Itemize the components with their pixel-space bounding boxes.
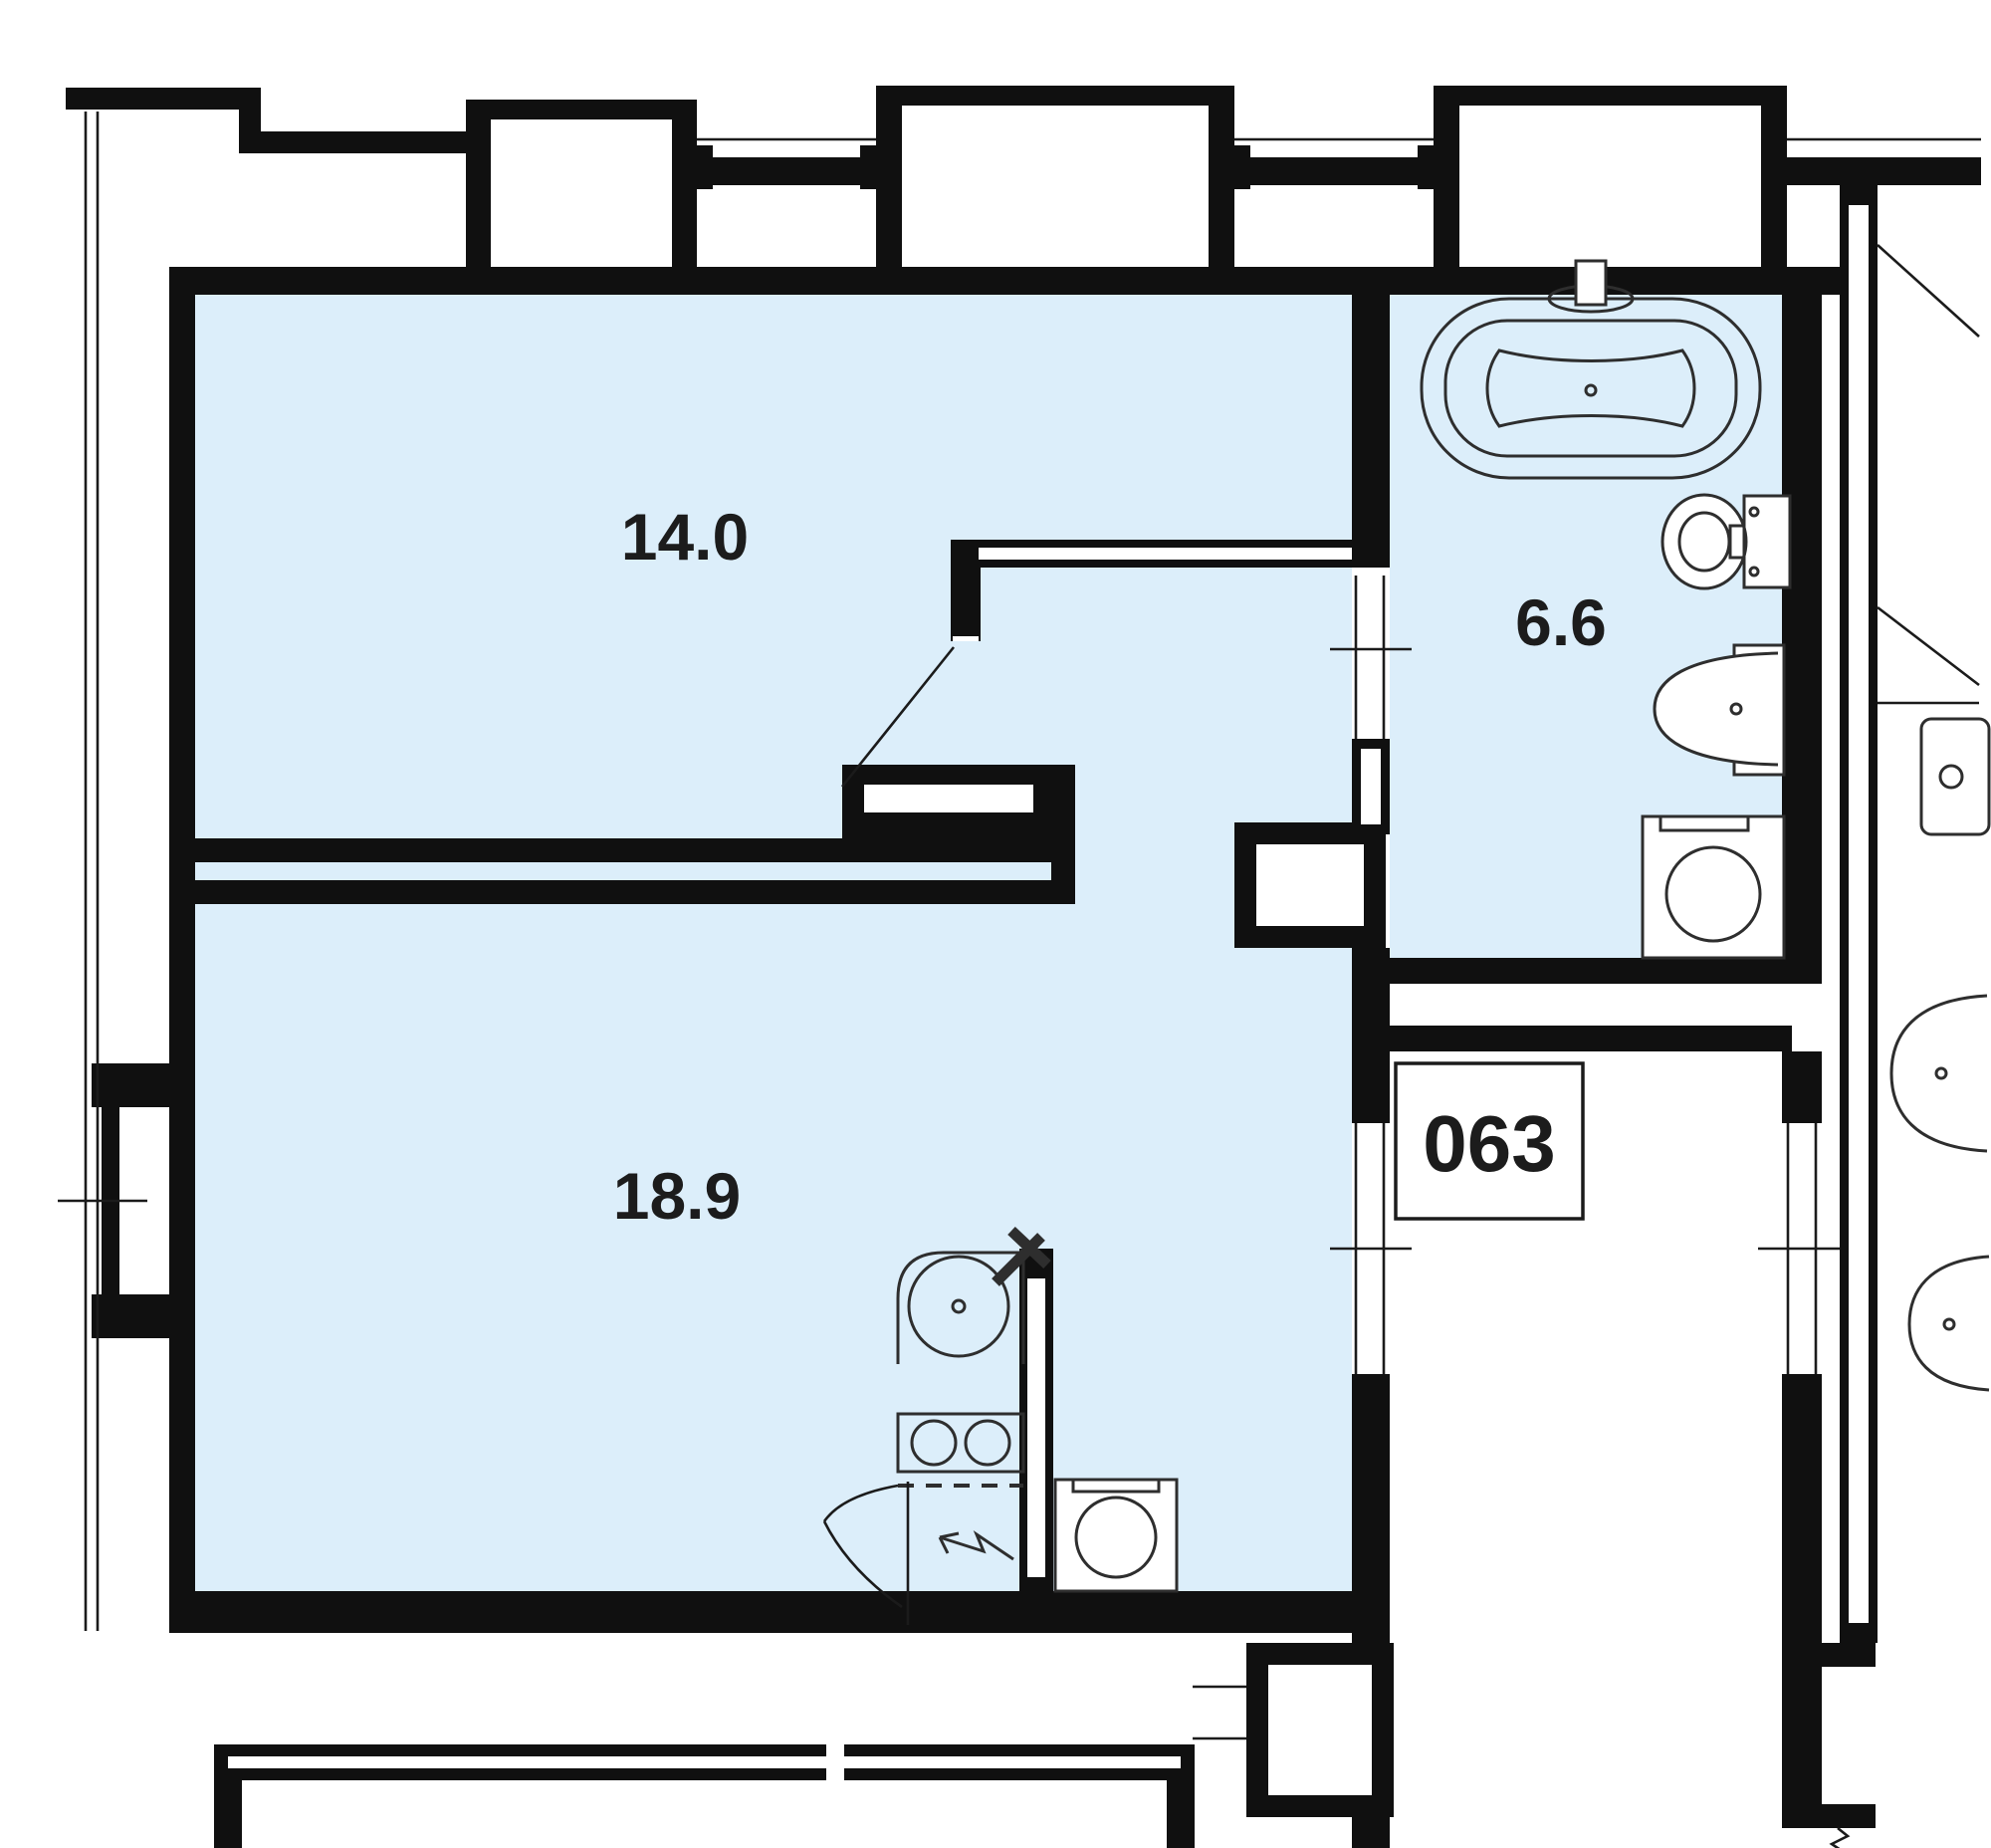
toilet-icon bbox=[1662, 495, 1790, 588]
neighbor-door-swing-icon-2 bbox=[1878, 607, 1979, 685]
neighbor-toilet-icon bbox=[1921, 719, 1989, 834]
bay1-top-wall bbox=[466, 100, 697, 119]
window1-jamb-r bbox=[860, 145, 876, 189]
bay1-left-wall bbox=[466, 100, 491, 295]
floor-plan-drawing: 14.0 18.9 6.6 063 bbox=[0, 0, 1991, 1848]
unit-number-badge: 063 bbox=[1396, 1063, 1583, 1219]
window3-bar bbox=[1787, 157, 1981, 185]
bay3-left-wall bbox=[1434, 86, 1459, 295]
neighbor-basin-icon bbox=[1891, 996, 1987, 1151]
bathroom-label: 6.6 bbox=[1515, 585, 1607, 659]
wall-step-3 bbox=[239, 131, 468, 153]
window1-bar bbox=[697, 157, 876, 185]
bay2-left-wall bbox=[876, 86, 902, 295]
corridor-right-wall-2 bbox=[1782, 1374, 1822, 1828]
bathroom-right-wall bbox=[1782, 295, 1822, 984]
door-stub bbox=[951, 568, 981, 641]
bay1-right-wall bbox=[672, 100, 697, 295]
bottom-wall bbox=[169, 1591, 1390, 1633]
room-18-9-label: 18.9 bbox=[613, 1159, 741, 1233]
corridor-top-bar-1 bbox=[1390, 958, 1792, 984]
window2-jamb-r bbox=[1418, 145, 1434, 189]
window2-jamb-l bbox=[1234, 145, 1250, 189]
room-areas bbox=[195, 295, 1782, 1591]
corridor-right-door-opening bbox=[1758, 1123, 1840, 1374]
break-line bbox=[1832, 1828, 1848, 1848]
corridor-top-bar-2 bbox=[1390, 1026, 1792, 1051]
neighbor-door-swing-icon bbox=[1878, 245, 1979, 337]
bay2-top-wall bbox=[876, 86, 1234, 106]
appliance-icon bbox=[1055, 1480, 1177, 1591]
left-wall bbox=[169, 267, 195, 1633]
bay2-right-wall bbox=[1209, 86, 1234, 295]
divider-bar-1 bbox=[169, 838, 1075, 862]
window1-jamb-l bbox=[697, 145, 713, 189]
floor-plan-page: 14.0 18.9 6.6 063 bbox=[0, 0, 1991, 1848]
neighbor-unit-fixtures bbox=[1878, 245, 1989, 1390]
corridor-right-step-2 bbox=[1822, 1804, 1876, 1828]
bathroom-left-wall bbox=[1352, 267, 1390, 568]
corridor-right-wall-1 bbox=[1782, 1051, 1822, 1123]
bay3-top-wall bbox=[1434, 86, 1787, 106]
divider-endcap bbox=[1051, 838, 1075, 904]
divider-bar-2 bbox=[169, 880, 1075, 904]
corridor-right-step-1 bbox=[1822, 1643, 1876, 1667]
bay3-right-wall bbox=[1761, 86, 1787, 295]
left-window-jamb-bottom bbox=[92, 1294, 171, 1338]
unit-number-label: 063 bbox=[1423, 1099, 1555, 1188]
room-14-label: 14.0 bbox=[621, 500, 749, 574]
wall-step-1 bbox=[66, 88, 261, 110]
room-14-area bbox=[195, 295, 1352, 1591]
washing-machine-icon bbox=[1643, 816, 1784, 958]
wall-below-shaft bbox=[1352, 948, 1390, 1123]
neighbor-basin-icon-2 bbox=[1909, 1257, 1989, 1390]
left-window-jamb-top bbox=[92, 1063, 171, 1107]
window2-bar bbox=[1234, 157, 1434, 185]
